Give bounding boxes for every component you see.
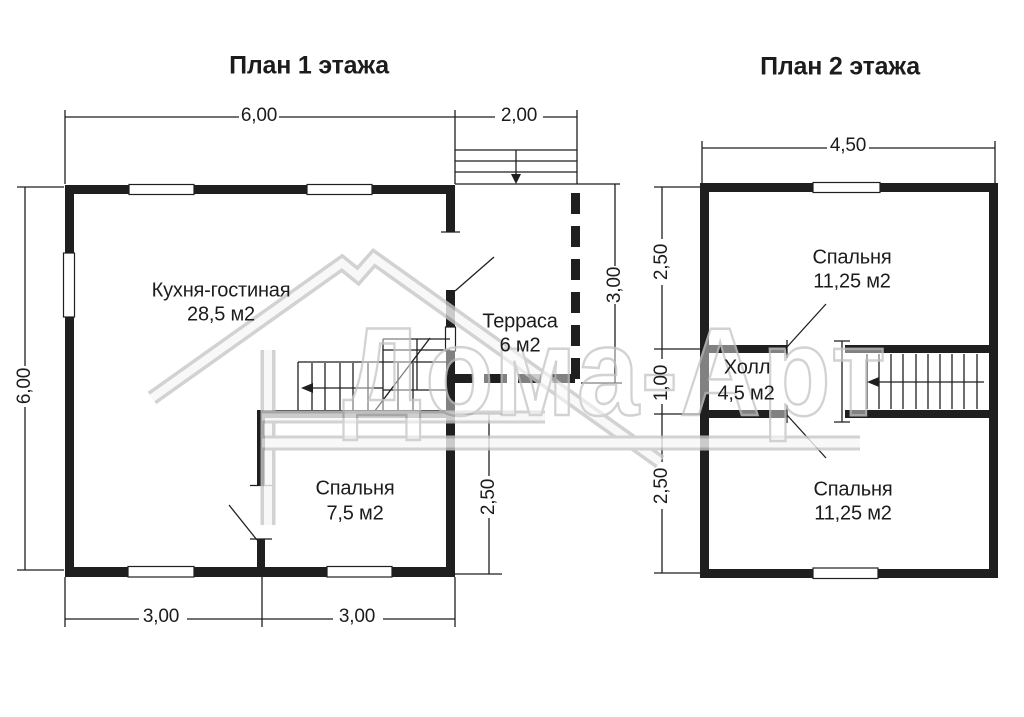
room-kitchen-name: Кухня-гостиная bbox=[152, 280, 291, 303]
room-bedroom-bottom-name: Спальня bbox=[814, 479, 893, 502]
dim-plan2-left-middle: 1,00 bbox=[651, 365, 673, 401]
watermark-text: Дома-Арт bbox=[343, 303, 888, 442]
room-terrace-area: 6 м2 bbox=[500, 335, 541, 358]
room-bedroom-top-name: Спальня bbox=[813, 247, 892, 270]
dim-plan1-terrace-right: 3,00 bbox=[604, 267, 626, 303]
room-kitchen-area: 28,5 м2 bbox=[187, 304, 255, 327]
floor-plans-canvas: Дома-Арт План 1 этажа План 2 этажа Кухня… bbox=[0, 0, 1024, 717]
plan1-title: План 1 этажа bbox=[229, 52, 389, 81]
dim-plan2-left-bottom: 2,50 bbox=[651, 468, 673, 504]
room-bedroom1-name: Спальня bbox=[316, 478, 395, 501]
dim-plan1-bedroom-right: 2,50 bbox=[478, 479, 500, 515]
room-bedroom1-area: 7,5 м2 bbox=[326, 503, 383, 526]
dim-plan1-left: 6,00 bbox=[14, 368, 36, 404]
room-terrace-name: Терраса bbox=[482, 311, 557, 334]
room-hall-name: Холл bbox=[724, 357, 770, 380]
room-bedroom-top-area: 11,25 м2 bbox=[813, 271, 890, 294]
dim-plan1-top-terrace: 2,00 bbox=[501, 105, 537, 127]
room-hall-area: 4,5 м2 bbox=[717, 383, 774, 406]
dim-plan2-left-top: 2,50 bbox=[651, 244, 673, 280]
dim-plan1-top-main: 6,00 bbox=[241, 105, 277, 127]
plan2-title: План 2 этажа bbox=[760, 53, 920, 82]
dim-plan1-bottom-left: 3,00 bbox=[143, 606, 179, 628]
room-bedroom-bottom-area: 11,25 м2 bbox=[814, 503, 891, 526]
dim-plan1-bottom-right: 3,00 bbox=[339, 606, 375, 628]
dim-plan2-top: 4,50 bbox=[830, 135, 866, 157]
